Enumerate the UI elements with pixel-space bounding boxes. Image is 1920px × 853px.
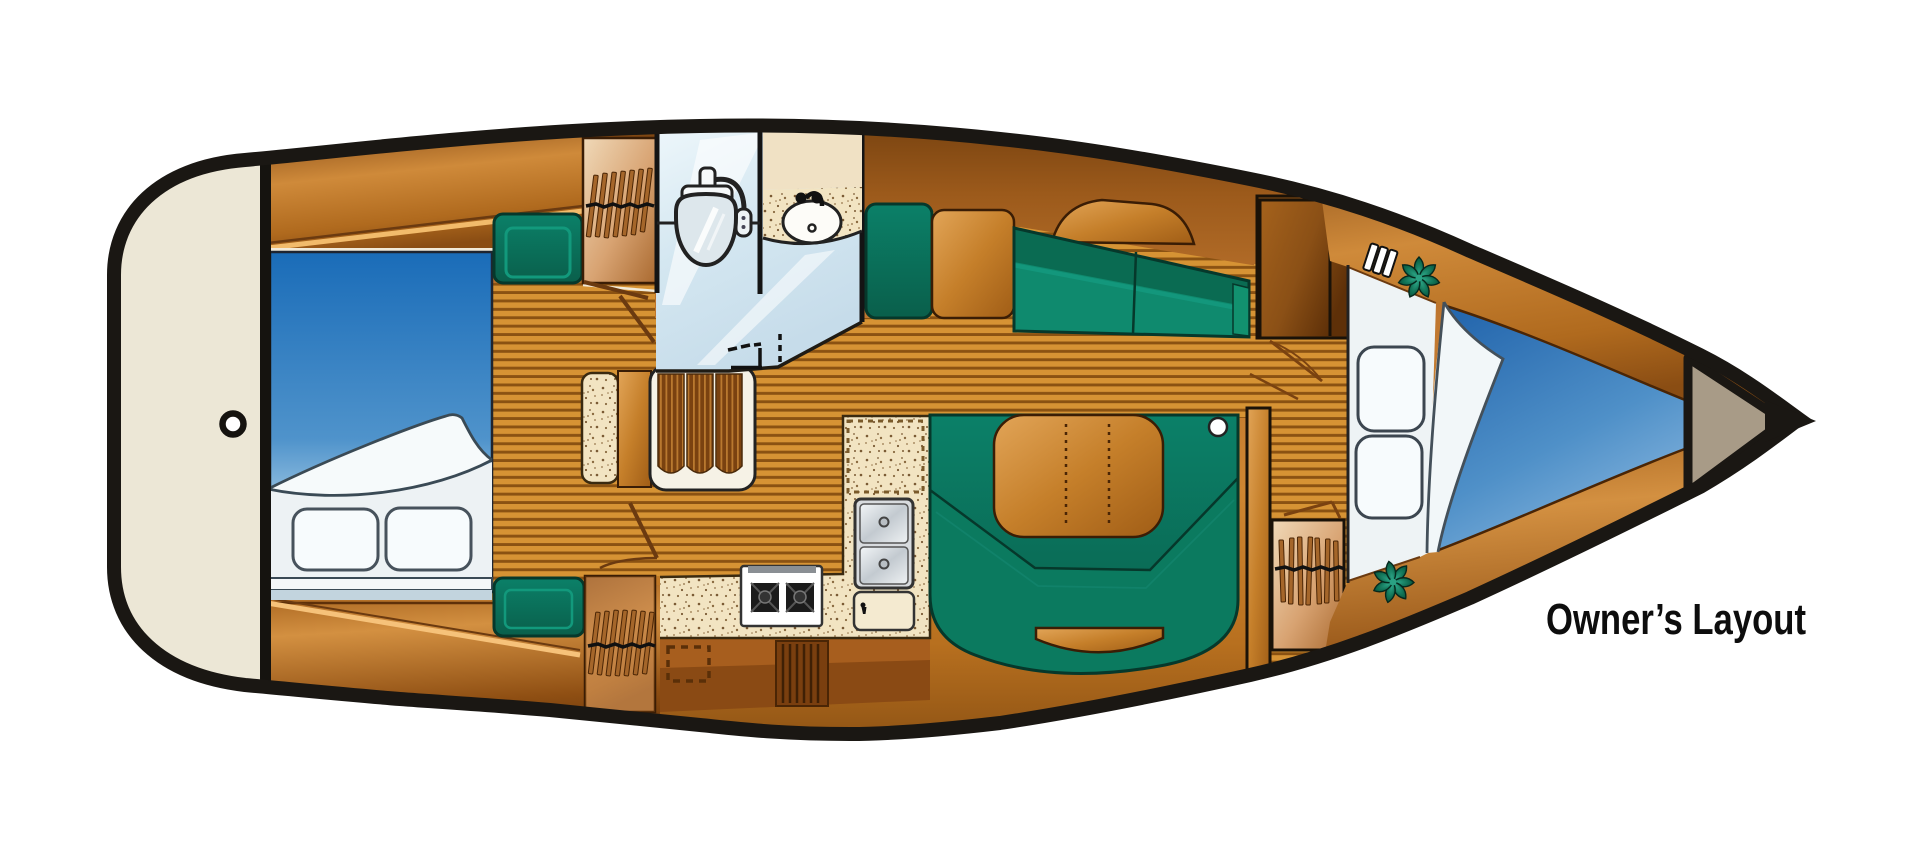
svg-text:Owner’s Layout: Owner’s Layout: [1546, 595, 1806, 644]
